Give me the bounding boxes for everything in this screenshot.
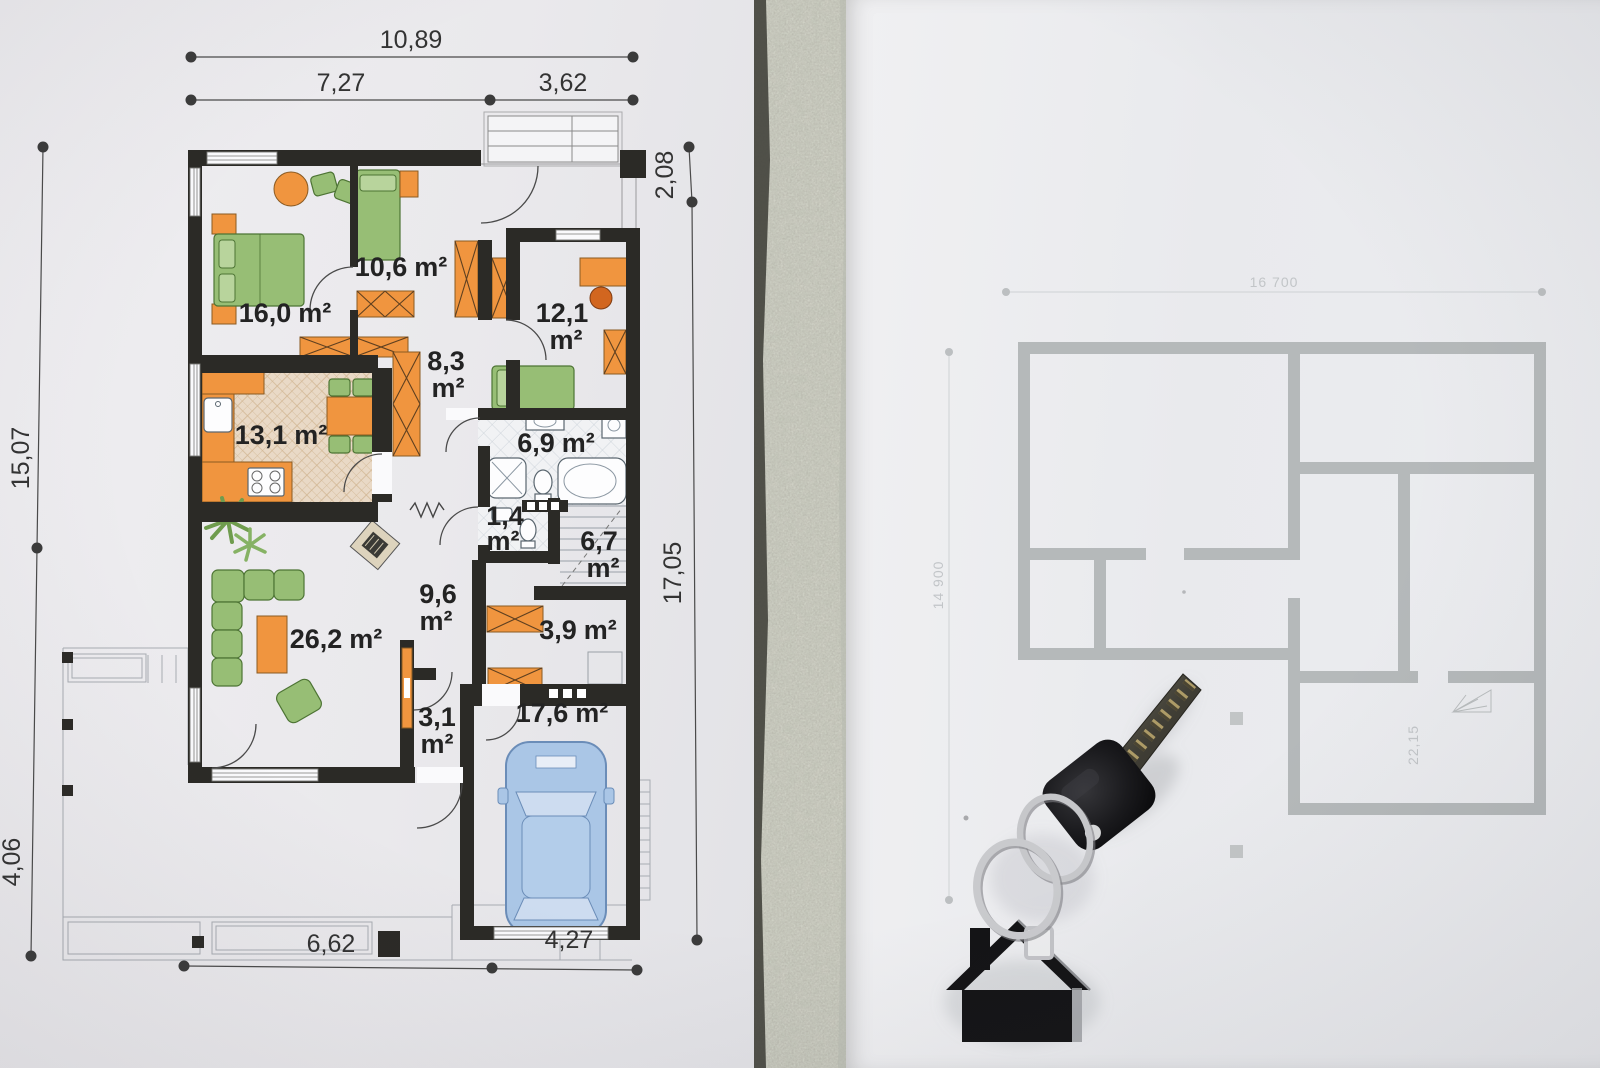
- section-mark: [410, 503, 444, 517]
- faded-dim-left: 14 900: [930, 561, 946, 610]
- windshield: [516, 792, 596, 816]
- desk: [580, 258, 628, 286]
- concrete-divider: [754, 0, 848, 1068]
- sofa-cushion: [274, 570, 304, 600]
- chair: [310, 171, 338, 197]
- label-entry: 3,1m²: [418, 702, 456, 759]
- terrace-posts: [62, 652, 400, 957]
- faded-plan-and-key: 16 700 14 900 22,15: [846, 0, 1600, 1068]
- label-storage: 3,9m²: [539, 615, 617, 645]
- bedroom2-furniture: [356, 170, 418, 317]
- faded-dim-top: 16 700: [1250, 274, 1299, 290]
- floor-plan-drawing: 16,0m² 10,6m² 12,1m² 8,3m² 13,1m² 6,9m² …: [0, 0, 758, 1068]
- toilet: [534, 470, 552, 494]
- dim-top-right: 3,62: [539, 69, 588, 97]
- dining-table: [327, 397, 377, 435]
- car-roof: [522, 816, 590, 898]
- sofa-cushion: [212, 602, 242, 630]
- label-living-room: 26,2m²: [290, 624, 383, 654]
- sofa-corner: [212, 570, 244, 602]
- wc-toilet-tank: [521, 541, 535, 548]
- chair: [353, 379, 374, 396]
- pillar: [1230, 712, 1243, 725]
- stool: [590, 287, 612, 309]
- dim-left-upper: 15,07: [7, 427, 35, 490]
- wardrobe: [357, 291, 414, 317]
- pillar: [1230, 845, 1243, 858]
- dim-right-lower: 17,05: [659, 542, 687, 605]
- license-plate: [536, 756, 576, 768]
- dim-bottom-right: 4,27: [545, 926, 594, 954]
- dim-bottom-left: 6,62: [307, 930, 356, 958]
- label-garage: 17,6m²: [516, 698, 609, 728]
- plant: [235, 529, 265, 560]
- fireplace: [350, 520, 399, 569]
- coffee-table: [257, 616, 287, 673]
- mirror: [604, 788, 614, 804]
- shelf: [400, 171, 418, 197]
- car: [498, 742, 614, 934]
- paper-speck: [1182, 590, 1186, 594]
- house-body: [962, 990, 1072, 1042]
- nightstand: [212, 304, 236, 324]
- faded-floor-plan: 16 700 14 900 22,15: [930, 274, 1546, 904]
- sofa-cushion: [212, 658, 242, 686]
- paper-speck: [964, 816, 969, 821]
- chair: [329, 379, 350, 396]
- dim-left-lower: 4,06: [0, 838, 26, 887]
- second-sheet: 16 700 14 900 22,15: [846, 0, 1600, 1068]
- round-table: [274, 172, 308, 206]
- label-wc: 1,4m²: [486, 501, 524, 556]
- label-bedroom1: 16,0m²: [239, 298, 332, 328]
- pillow: [219, 274, 235, 302]
- chair: [329, 436, 350, 453]
- photo-of-floor-plans: 16,0m² 10,6m² 12,1m² 8,3m² 13,1m² 6,9m² …: [0, 0, 1600, 1068]
- mirror: [498, 788, 508, 804]
- nightstand: [212, 214, 236, 234]
- label-hall: 8,3m²: [427, 346, 465, 403]
- dim-top-left: 7,27: [317, 69, 366, 97]
- entrance-steps: [480, 112, 636, 228]
- tall-wardrobe: [393, 352, 420, 456]
- pillow: [219, 240, 235, 268]
- dim-top-total: 10,89: [380, 26, 443, 54]
- door-mat: [588, 652, 622, 684]
- rear-window: [514, 898, 598, 920]
- dim-right-upper: 2,08: [651, 151, 679, 200]
- armchair: [274, 677, 324, 725]
- floor-plan-sheet: 16,0m² 10,6m² 12,1m² 8,3m² 13,1m² 6,9m² …: [0, 0, 758, 1068]
- beveled-edge: [1072, 988, 1082, 1042]
- sofa-cushion: [212, 630, 242, 658]
- faded-room-area: 22,15: [1405, 725, 1421, 765]
- label-staircase: 6,7m²: [580, 526, 619, 583]
- label-kitchen: 13,1m²: [235, 420, 328, 450]
- sink: [204, 398, 232, 432]
- living-room-furniture: [206, 498, 400, 725]
- pillow: [360, 175, 396, 191]
- label-corridor: 9,6m²: [419, 579, 457, 636]
- label-bedroom2: 10,6m²: [355, 252, 448, 282]
- sofa-cushion: [244, 570, 274, 600]
- chair: [353, 436, 374, 453]
- stairs-symbol: [1453, 690, 1491, 712]
